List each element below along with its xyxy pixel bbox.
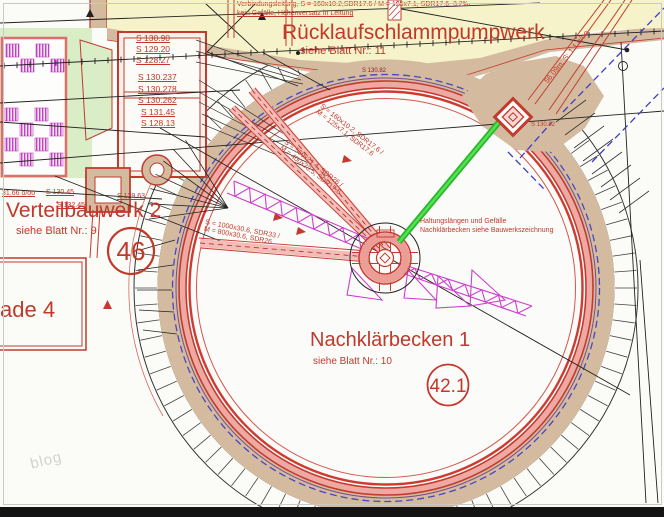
elevation-label: S 130.45 bbox=[46, 189, 74, 196]
wall-elevation-label: S 130.82 bbox=[362, 68, 386, 74]
connection-note-line2: kein Gefälle, Höhenversatz in Leitung bbox=[237, 10, 353, 17]
connection-note-line1: Verbindungsleitung, S = 160x10.2,SDR17.6… bbox=[237, 1, 470, 8]
clarifier-title: Nachklärbecken 1 bbox=[310, 330, 470, 351]
pump-station-subtitle: siehe Blatt Nr.: 11 bbox=[300, 46, 386, 58]
pump-station-title: Rücklaufschlammpumpwerk bbox=[282, 22, 545, 44]
elevation-label: S 129.20 bbox=[136, 45, 170, 54]
elevation-label: S 130.262 bbox=[138, 96, 177, 105]
clarifier-note-line1: Haltungslängen und Gefälle bbox=[420, 218, 506, 225]
cad-linework bbox=[0, 0, 664, 517]
elevation-label: S 130.278 bbox=[138, 85, 177, 94]
bottom-bar bbox=[0, 507, 664, 517]
pump-building-grid bbox=[2, 38, 66, 176]
distribution-title: Verteilbauwerk 2 bbox=[6, 200, 161, 222]
sheet-badge-46: 46 bbox=[113, 236, 149, 267]
distribution-subtitle: siehe Blatt Nr.: 9 bbox=[16, 226, 97, 238]
elevation-label: S 130.237 bbox=[138, 73, 177, 82]
site-plan-drawing: Verbindungsleitung, S = 160x10.2,SDR17.6… bbox=[0, 0, 664, 517]
small-round-structure bbox=[142, 155, 172, 185]
elevation-label: S 131.45 bbox=[141, 108, 175, 117]
elevation-label: S 130.90 bbox=[136, 34, 170, 43]
outlet-elevation-label: S 130.82 bbox=[531, 122, 555, 128]
partial-title: ade 4 bbox=[0, 298, 55, 321]
elevation-label: S 128.13 bbox=[141, 119, 175, 128]
clarifier-subtitle: siehe Blatt Nr.: 10 bbox=[313, 357, 392, 368]
elevation-label: S 128.27 bbox=[136, 56, 170, 65]
sheet-badge-42-1: 42.1 bbox=[428, 376, 468, 398]
clarifier-note-line2: Nachklärbecken siehe Bauwerkszeichnung bbox=[420, 227, 553, 234]
slope-label: 31.66 o/oo bbox=[2, 190, 35, 197]
